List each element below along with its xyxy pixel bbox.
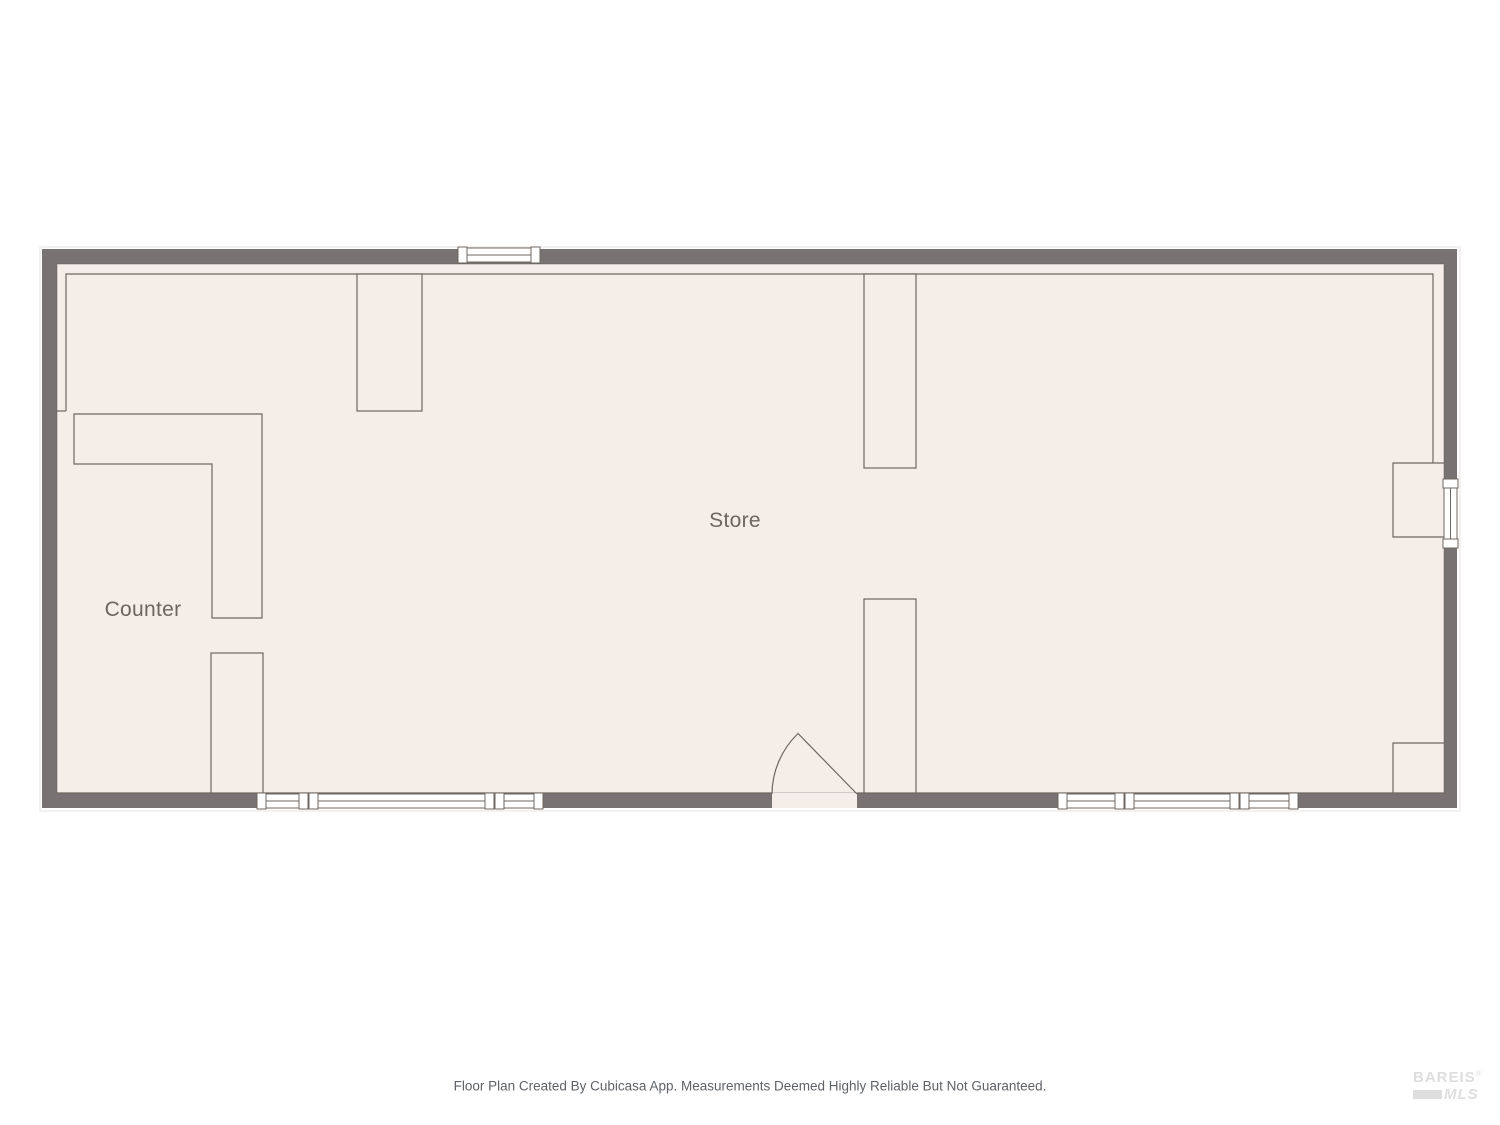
- room-label-counter: Counter: [105, 598, 182, 622]
- window-bottom-left-3: [495, 793, 543, 809]
- window-bottom-left-2: [309, 793, 494, 809]
- bareis-mls-logo: BAREIS® MLS: [1413, 1070, 1493, 1102]
- top-wall-stub-left: [357, 274, 422, 411]
- logo-name: BAREIS: [1413, 1069, 1476, 1086]
- window-right: [1443, 479, 1458, 548]
- top-wall-stub-center: [864, 274, 916, 468]
- logo-suffix: MLS: [1444, 1087, 1479, 1102]
- logo-bottom-row: MLS: [1413, 1087, 1493, 1102]
- floor-plan-drawing: [0, 0, 1500, 1125]
- door-threshold: [772, 793, 857, 808]
- floor-plan-page: Store Counter Floor Plan Created By Cubi…: [0, 0, 1500, 1125]
- window-top: [458, 247, 540, 263]
- room-label-store: Store: [709, 509, 761, 533]
- window-bottom-right-1: [1058, 793, 1124, 809]
- registered-trademark-icon: ®: [1476, 1069, 1482, 1078]
- logo-top-row: BAREIS®: [1413, 1070, 1493, 1086]
- footer-disclaimer: Floor Plan Created By Cubicasa App. Meas…: [454, 1079, 1047, 1094]
- logo-bar: [1413, 1090, 1442, 1099]
- bottom-wall-stub-center: [864, 599, 916, 793]
- window-bottom-left-1: [257, 793, 308, 809]
- counter-lower-stub: [211, 653, 263, 793]
- window-bottom-right-2: [1125, 793, 1239, 809]
- window-bottom-right-3: [1240, 793, 1298, 809]
